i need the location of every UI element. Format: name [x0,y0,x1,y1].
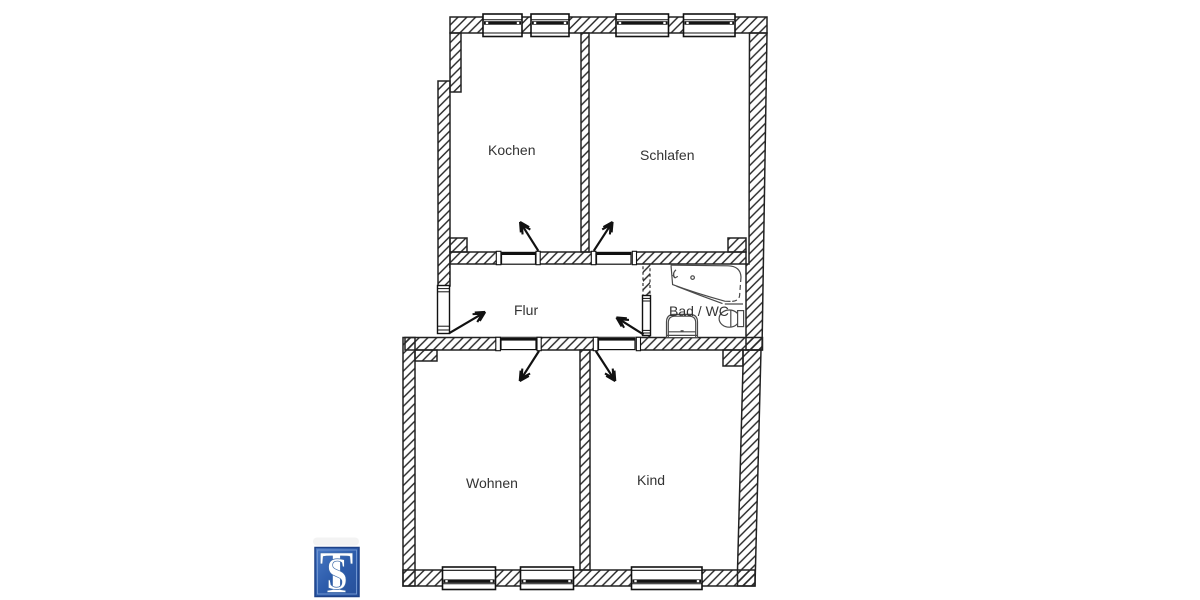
svg-text:Flur: Flur [514,302,538,318]
svg-text:Kind: Kind [637,472,665,488]
svg-text:Bad / WC: Bad / WC [669,303,729,319]
svg-text:S: S [326,550,347,600]
svg-text:Kochen: Kochen [488,142,535,158]
svg-text:Wohnen: Wohnen [466,475,518,491]
svg-text:Schlafen: Schlafen [640,147,694,163]
